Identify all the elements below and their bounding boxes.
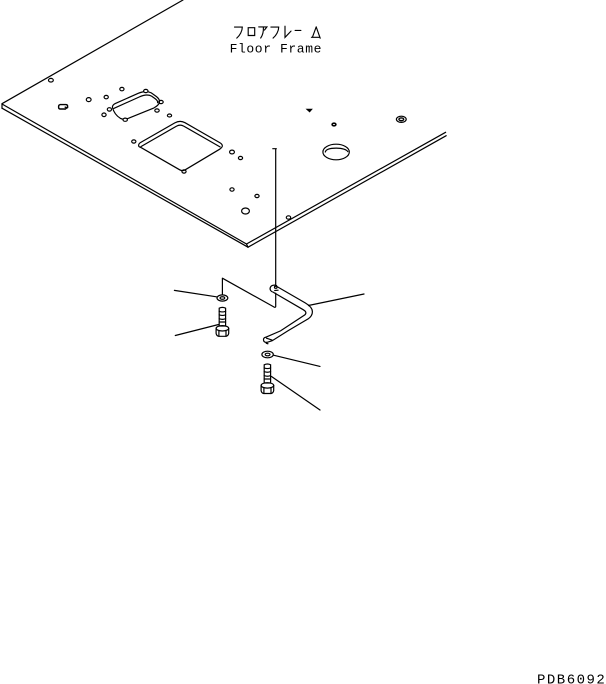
svg-text:PDB6092: PDB6092 xyxy=(537,673,606,684)
svg-text:Floor Frame: Floor Frame xyxy=(230,42,322,57)
